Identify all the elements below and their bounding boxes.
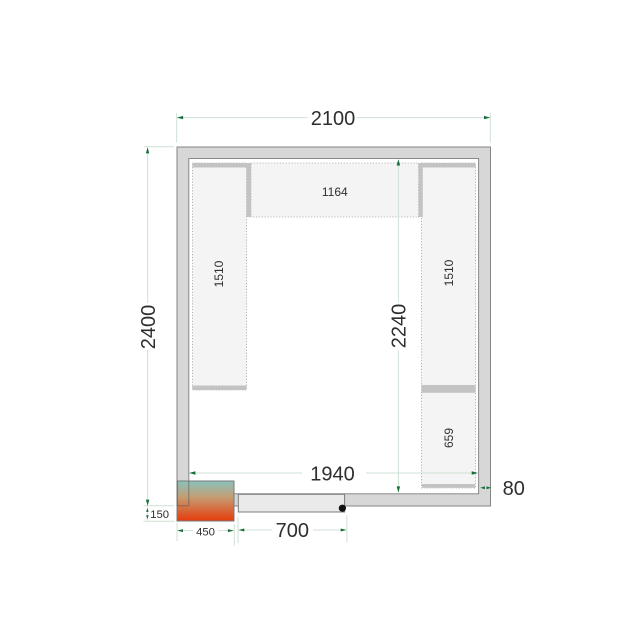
svg-text:150: 150: [150, 509, 169, 521]
svg-text:1164: 1164: [322, 185, 348, 199]
svg-text:2400: 2400: [138, 305, 160, 350]
svg-text:80: 80: [503, 478, 525, 500]
svg-text:2100: 2100: [311, 108, 356, 130]
svg-text:1510: 1510: [442, 259, 456, 286]
svg-text:1510: 1510: [212, 260, 226, 287]
svg-text:659: 659: [442, 428, 456, 448]
svg-text:2240: 2240: [389, 304, 411, 349]
svg-text:700: 700: [276, 520, 309, 542]
svg-text:1940: 1940: [310, 463, 355, 485]
svg-text:450: 450: [196, 527, 215, 539]
